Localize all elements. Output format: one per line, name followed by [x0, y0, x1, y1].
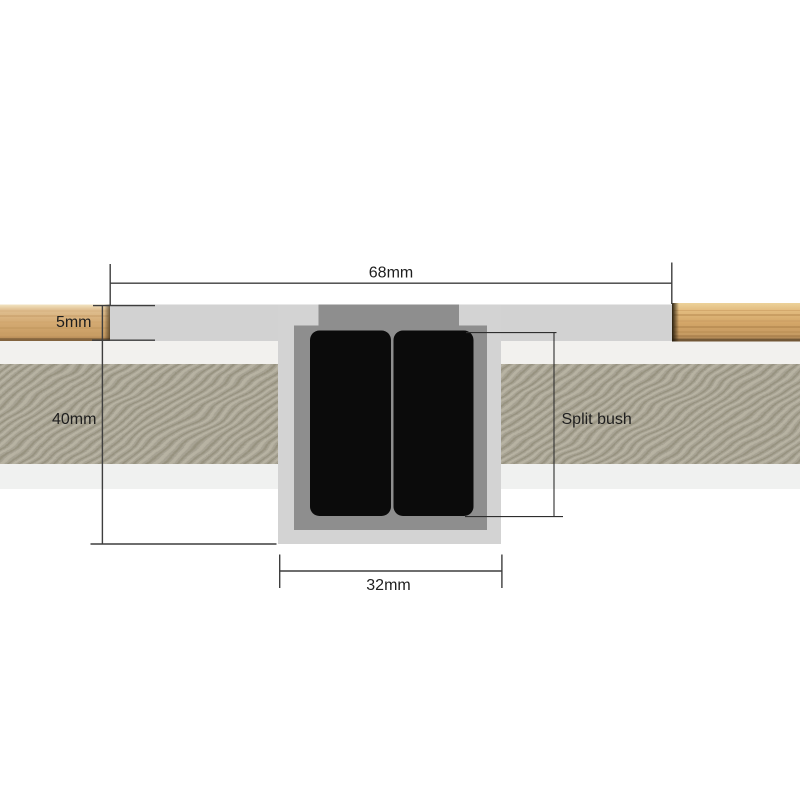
- svg-text:Split bush: Split bush: [562, 411, 632, 428]
- svg-text:68mm: 68mm: [369, 265, 413, 282]
- svg-text:40mm: 40mm: [52, 411, 96, 428]
- svg-text:32mm: 32mm: [366, 577, 410, 594]
- svg-text:5mm: 5mm: [56, 314, 92, 331]
